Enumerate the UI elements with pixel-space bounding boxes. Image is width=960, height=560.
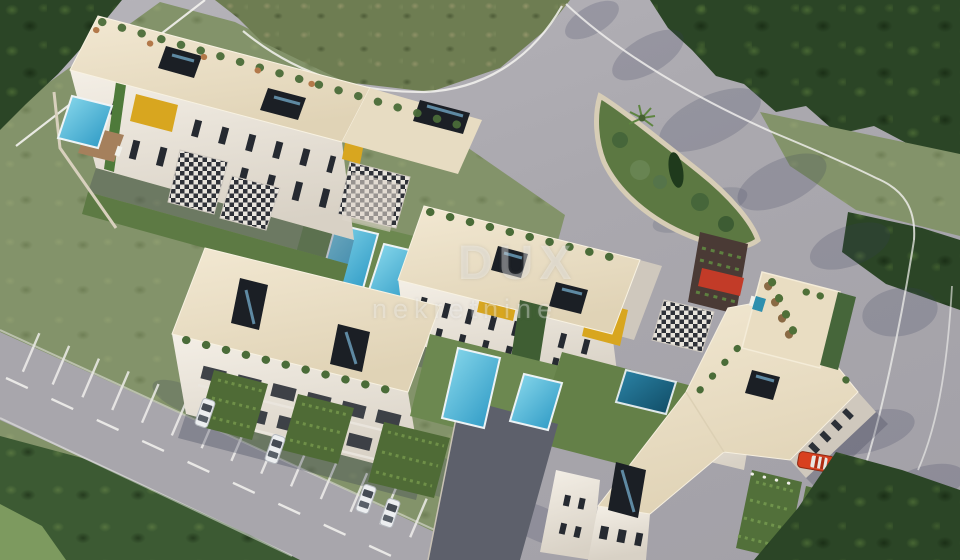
checker-pergola bbox=[652, 300, 714, 352]
site-plan bbox=[0, 0, 960, 560]
aerial-render-scene: DUX nekretnine bbox=[0, 0, 960, 560]
red-vertical-garden bbox=[688, 232, 748, 314]
palm-tree bbox=[629, 105, 655, 126]
